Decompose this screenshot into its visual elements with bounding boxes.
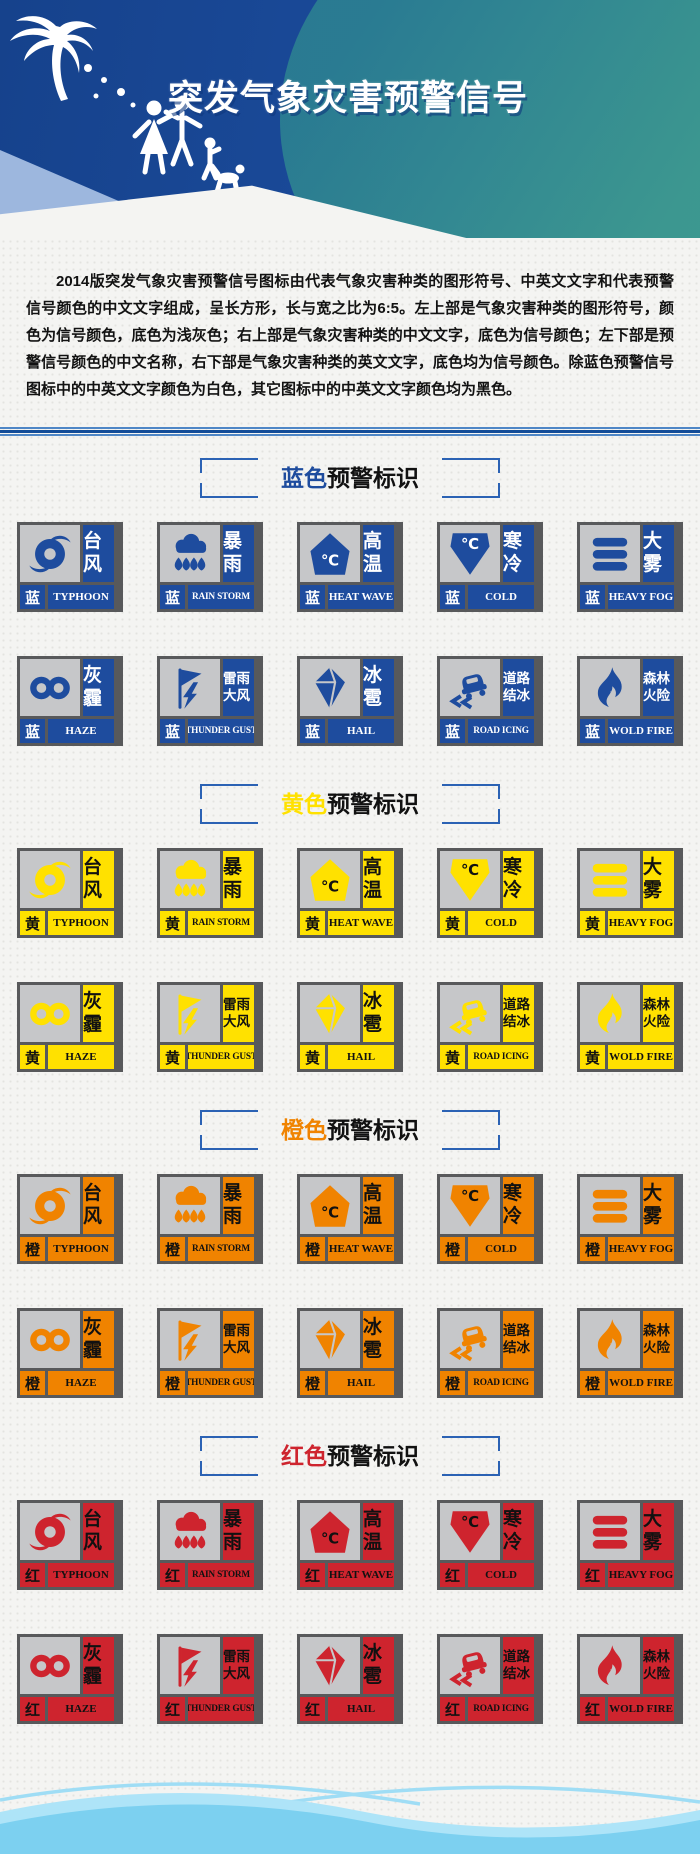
section-title: 橙色预警标识 <box>200 1110 500 1150</box>
card-icon-cell <box>300 1637 360 1694</box>
card-zh-label: 台风 <box>83 525 114 582</box>
rain-storm-icon <box>167 1183 213 1229</box>
card-icon-cell <box>160 1637 220 1694</box>
palm-tree-icon <box>10 16 97 101</box>
card-icon-cell <box>580 1637 640 1694</box>
warning-card-blue-hail: 冰雹 蓝 HAIL <box>297 656 403 746</box>
svg-text:℃: ℃ <box>321 551 339 569</box>
section-title-color-word: 蓝色 <box>281 465 327 491</box>
typhoon-icon <box>27 1183 73 1229</box>
wold-fire-icon <box>587 991 633 1037</box>
card-en-label: HAIL <box>328 719 394 743</box>
card-icon-cell <box>20 1503 80 1560</box>
section-blue: 蓝色预警标识 台风 蓝 TYPHOON 暴雨 蓝 RAIN STORM ℃ 高温… <box>0 458 700 746</box>
card-color-label: 红 <box>20 1563 45 1587</box>
bracket-corner-icon <box>200 784 258 799</box>
warning-card-blue-heavy-fog: 大雾 蓝 HEAVY FOG <box>577 522 683 612</box>
bracket-corner-icon <box>442 458 500 473</box>
section-title-suffix: 预警标识 <box>327 465 419 491</box>
card-color-label: 蓝 <box>160 719 185 743</box>
card-zh-label: 寒冷 <box>503 851 534 908</box>
card-en-label: ROAD ICING <box>468 1045 534 1069</box>
card-en-label: TYPHOON <box>48 1237 114 1261</box>
bracket-corner-icon <box>200 1110 258 1125</box>
card-zh-label: 台风 <box>83 1177 114 1234</box>
card-color-label: 蓝 <box>20 719 45 743</box>
bracket-corner-icon <box>200 1436 258 1451</box>
card-zh-label: 冰雹 <box>363 1311 394 1368</box>
card-en-label: HAIL <box>328 1045 394 1069</box>
thunder-gust-icon <box>167 665 213 711</box>
card-en-label: RAIN STORM <box>188 911 254 935</box>
card-icon-cell <box>160 659 220 716</box>
card-zh-label: 雷雨大风 <box>223 659 254 716</box>
heat-wave-icon: ℃ <box>307 857 353 903</box>
warning-card-orange-road-icing: 道路结冰 橙 ROAD ICING <box>437 1308 543 1398</box>
card-en-label: HEAVY FOG <box>608 585 674 609</box>
card-icon-cell <box>440 1311 500 1368</box>
card-icon-cell: ℃ <box>440 1177 500 1234</box>
card-en-label: RAIN STORM <box>188 585 254 609</box>
header-banner: 突发气象灾害预警信号 <box>0 0 700 238</box>
warning-card-red-typhoon: 台风 红 TYPHOON <box>17 1500 123 1590</box>
card-icon-cell: ℃ <box>300 851 360 908</box>
heavy-fog-icon <box>587 1509 633 1555</box>
cold-icon: ℃ <box>447 1183 493 1229</box>
section-yellow: 黄色预警标识 台风 黄 TYPHOON 暴雨 黄 RAIN STORM ℃ 高温… <box>0 784 700 1072</box>
svg-text:℃: ℃ <box>461 1186 479 1204</box>
bracket-corner-icon <box>442 809 500 824</box>
road-icing-icon <box>447 991 493 1037</box>
card-icon-cell <box>580 659 640 716</box>
warning-card-blue-typhoon: 台风 蓝 TYPHOON <box>17 522 123 612</box>
card-zh-label: 灰霾 <box>83 985 114 1042</box>
card-zh-label: 灰霾 <box>83 659 114 716</box>
card-color-label: 蓝 <box>20 585 45 609</box>
card-color-label: 蓝 <box>300 719 325 743</box>
warning-card-blue-heat-wave: ℃ 高温 蓝 HEAT WAVE <box>297 522 403 612</box>
card-en-label: THUNDER GUST <box>188 1697 254 1721</box>
warning-card-blue-rain-storm: 暴雨 蓝 RAIN STORM <box>157 522 263 612</box>
card-row: 台风 红 TYPHOON 暴雨 红 RAIN STORM ℃ 高温 红 HEAT… <box>0 1500 700 1590</box>
hail-icon <box>307 991 353 1037</box>
card-icon-cell <box>160 1503 220 1560</box>
card-color-label: 橙 <box>20 1371 45 1395</box>
warning-card-orange-haze: 灰霾 橙 HAZE <box>17 1308 123 1398</box>
haze-icon <box>27 991 73 1037</box>
card-icon-cell: ℃ <box>300 1177 360 1234</box>
card-icon-cell <box>580 1311 640 1368</box>
divider-rule <box>0 427 700 436</box>
card-zh-label: 寒冷 <box>503 1503 534 1560</box>
card-icon-cell <box>580 851 640 908</box>
warning-card-yellow-heavy-fog: 大雾 黄 HEAVY FOG <box>577 848 683 938</box>
section-title: 红色预警标识 <box>200 1436 500 1476</box>
svg-text:℃: ℃ <box>461 1512 479 1530</box>
card-zh-label: 暴雨 <box>223 1503 254 1560</box>
card-en-label: WOLD FIRE <box>608 1371 674 1395</box>
card-color-label: 红 <box>300 1697 325 1721</box>
warning-card-orange-wold-fire: 森林火险 橙 WOLD FIRE <box>577 1308 683 1398</box>
card-color-label: 红 <box>580 1697 605 1721</box>
card-icon-cell <box>440 1637 500 1694</box>
card-icon-cell: ℃ <box>440 525 500 582</box>
wold-fire-icon <box>587 1317 633 1363</box>
card-row: 台风 橙 TYPHOON 暴雨 橙 RAIN STORM ℃ 高温 橙 HEAT… <box>0 1174 700 1264</box>
warning-card-yellow-haze: 灰霾 黄 HAZE <box>17 982 123 1072</box>
card-color-label: 蓝 <box>580 585 605 609</box>
card-icon-cell: ℃ <box>440 851 500 908</box>
card-en-label: THUNDER GUST <box>188 1045 254 1069</box>
warning-card-yellow-hail: 冰雹 黄 HAIL <box>297 982 403 1072</box>
hail-icon <box>307 1643 353 1689</box>
section-title: 蓝色预警标识 <box>200 458 500 498</box>
card-icon-cell <box>300 659 360 716</box>
svg-text:℃: ℃ <box>461 860 479 878</box>
card-zh-label: 大雾 <box>643 1177 674 1234</box>
card-color-label: 蓝 <box>440 719 465 743</box>
heat-wave-icon: ℃ <box>307 1509 353 1555</box>
card-icon-cell <box>20 659 80 716</box>
warning-card-yellow-wold-fire: 森林火险 黄 WOLD FIRE <box>577 982 683 1072</box>
card-en-label: HEAVY FOG <box>608 1237 674 1261</box>
heavy-fog-icon <box>587 857 633 903</box>
card-color-label: 蓝 <box>300 585 325 609</box>
sections-container: 蓝色预警标识 台风 蓝 TYPHOON 暴雨 蓝 RAIN STORM ℃ 高温… <box>0 458 700 1724</box>
road-icing-icon <box>447 1643 493 1689</box>
card-zh-label: 暴雨 <box>223 851 254 908</box>
card-color-label: 橙 <box>300 1237 325 1261</box>
thunder-gust-icon <box>167 1643 213 1689</box>
card-row: 灰霾 橙 HAZE 雷雨大风 橙 THUNDER GUST 冰雹 橙 HAIL … <box>0 1308 700 1398</box>
warning-card-blue-thunder-gust: 雷雨大风 蓝 THUNDER GUST <box>157 656 263 746</box>
card-zh-label: 暴雨 <box>223 525 254 582</box>
card-zh-label: 台风 <box>83 851 114 908</box>
divider-rule-bar <box>0 430 700 433</box>
card-zh-label: 冰雹 <box>363 985 394 1042</box>
card-color-label: 红 <box>160 1697 185 1721</box>
card-zh-label: 道路结冰 <box>503 985 534 1042</box>
warning-card-orange-typhoon: 台风 橙 TYPHOON <box>17 1174 123 1264</box>
warning-card-red-cold: ℃ 寒冷 红 COLD <box>437 1500 543 1590</box>
warning-card-red-hail: 冰雹 红 HAIL <box>297 1634 403 1724</box>
section-title: 黄色预警标识 <box>200 784 500 824</box>
warning-card-red-heavy-fog: 大雾 红 HEAVY FOG <box>577 1500 683 1590</box>
card-icon-cell <box>580 1503 640 1560</box>
card-row: 灰霾 蓝 HAZE 雷雨大风 蓝 THUNDER GUST 冰雹 蓝 HAIL … <box>0 656 700 746</box>
warning-card-orange-heavy-fog: 大雾 橙 HEAVY FOG <box>577 1174 683 1264</box>
card-icon-cell <box>580 985 640 1042</box>
svg-text:℃: ℃ <box>321 877 339 895</box>
card-color-label: 黄 <box>20 1045 45 1069</box>
warning-card-red-road-icing: 道路结冰 红 ROAD ICING <box>437 1634 543 1724</box>
card-color-label: 橙 <box>300 1371 325 1395</box>
thunder-gust-icon <box>167 991 213 1037</box>
card-icon-cell <box>160 525 220 582</box>
cold-icon: ℃ <box>447 531 493 577</box>
section-title-color-word: 黄色 <box>281 791 327 817</box>
card-icon-cell <box>20 1637 80 1694</box>
warning-card-red-heat-wave: ℃ 高温 红 HEAT WAVE <box>297 1500 403 1590</box>
card-icon-cell <box>580 1177 640 1234</box>
card-en-label: COLD <box>468 1237 534 1261</box>
card-color-label: 黄 <box>580 911 605 935</box>
card-color-label: 红 <box>440 1563 465 1587</box>
warning-card-yellow-cold: ℃ 寒冷 黄 COLD <box>437 848 543 938</box>
card-color-label: 红 <box>160 1563 185 1587</box>
card-icon-cell <box>160 985 220 1042</box>
warning-card-yellow-rain-storm: 暴雨 黄 RAIN STORM <box>157 848 263 938</box>
heat-wave-icon: ℃ <box>307 1183 353 1229</box>
card-icon-cell <box>580 525 640 582</box>
section-title-color-word: 红色 <box>281 1443 327 1469</box>
warning-card-red-haze: 灰霾 红 HAZE <box>17 1634 123 1724</box>
footer-waves <box>0 1762 700 1854</box>
card-icon-cell: ℃ <box>300 1503 360 1560</box>
bracket-corner-icon <box>442 784 500 799</box>
card-color-label: 黄 <box>300 911 325 935</box>
card-en-label: THUNDER GUST <box>188 719 254 743</box>
card-en-label: COLD <box>468 585 534 609</box>
card-en-label: TYPHOON <box>48 585 114 609</box>
card-icon-cell <box>20 851 80 908</box>
rain-storm-icon <box>167 531 213 577</box>
card-color-label: 橙 <box>580 1371 605 1395</box>
section-title-suffix: 预警标识 <box>327 791 419 817</box>
card-zh-label: 道路结冰 <box>503 1637 534 1694</box>
heat-wave-icon: ℃ <box>307 531 353 577</box>
card-icon-cell <box>300 1311 360 1368</box>
card-icon-cell: ℃ <box>440 1503 500 1560</box>
warning-card-red-wold-fire: 森林火险 红 WOLD FIRE <box>577 1634 683 1724</box>
card-zh-label: 大雾 <box>643 1503 674 1560</box>
card-zh-label: 雷雨大风 <box>223 1311 254 1368</box>
card-color-label: 黄 <box>160 1045 185 1069</box>
card-en-label: HEAVY FOG <box>608 911 674 935</box>
card-row: 灰霾 红 HAZE 雷雨大风 红 THUNDER GUST 冰雹 红 HAIL … <box>0 1634 700 1724</box>
card-zh-label: 雷雨大风 <box>223 985 254 1042</box>
card-color-label: 红 <box>300 1563 325 1587</box>
card-en-label: HAIL <box>328 1697 394 1721</box>
section-orange: 橙色预警标识 台风 橙 TYPHOON 暴雨 橙 RAIN STORM ℃ 高温… <box>0 1110 700 1398</box>
svg-text:℃: ℃ <box>321 1529 339 1547</box>
svg-text:℃: ℃ <box>461 534 479 552</box>
road-icing-icon <box>447 1317 493 1363</box>
typhoon-icon <box>27 857 73 903</box>
card-color-label: 橙 <box>160 1371 185 1395</box>
typhoon-icon <box>27 531 73 577</box>
card-en-label: COLD <box>468 1563 534 1587</box>
bracket-corner-icon <box>442 1135 500 1150</box>
cold-icon: ℃ <box>447 857 493 903</box>
bracket-corner-icon <box>200 458 258 473</box>
bracket-corner-icon <box>200 483 258 498</box>
section-red: 红色预警标识 台风 红 TYPHOON 暴雨 红 RAIN STORM ℃ 高温… <box>0 1436 700 1724</box>
card-zh-label: 森林火险 <box>643 1311 674 1368</box>
card-en-label: THUNDER GUST <box>188 1371 254 1395</box>
card-zh-label: 高温 <box>363 851 394 908</box>
bracket-corner-icon <box>200 1461 258 1476</box>
haze-icon <box>27 1643 73 1689</box>
card-en-label: HEAT WAVE <box>328 911 394 935</box>
card-color-label: 黄 <box>160 911 185 935</box>
thunder-gust-icon <box>167 1317 213 1363</box>
footer <box>0 1762 700 1854</box>
card-en-label: ROAD ICING <box>468 1697 534 1721</box>
card-zh-label: 森林火险 <box>643 1637 674 1694</box>
card-zh-label: 森林火险 <box>643 985 674 1042</box>
card-en-label: HEAT WAVE <box>328 1237 394 1261</box>
card-zh-label: 高温 <box>363 525 394 582</box>
card-zh-label: 台风 <box>83 1503 114 1560</box>
rain-storm-icon <box>167 1509 213 1555</box>
card-en-label: RAIN STORM <box>188 1237 254 1261</box>
card-color-label: 橙 <box>440 1237 465 1261</box>
heavy-fog-icon <box>587 1183 633 1229</box>
section-title-suffix: 预警标识 <box>327 1443 419 1469</box>
card-zh-label: 寒冷 <box>503 525 534 582</box>
cold-icon: ℃ <box>447 1509 493 1555</box>
wold-fire-icon <box>587 1643 633 1689</box>
card-zh-label: 高温 <box>363 1177 394 1234</box>
typhoon-icon <box>27 1509 73 1555</box>
card-en-label: HAZE <box>48 1371 114 1395</box>
warning-card-orange-heat-wave: ℃ 高温 橙 HEAT WAVE <box>297 1174 403 1264</box>
card-zh-label: 道路结冰 <box>503 659 534 716</box>
card-en-label: HAZE <box>48 719 114 743</box>
card-zh-label: 冰雹 <box>363 659 394 716</box>
card-zh-label: 高温 <box>363 1503 394 1560</box>
bracket-corner-icon <box>200 1135 258 1150</box>
card-en-label: WOLD FIRE <box>608 1697 674 1721</box>
card-icon-cell <box>20 1177 80 1234</box>
warning-card-red-thunder-gust: 雷雨大风 红 THUNDER GUST <box>157 1634 263 1724</box>
bracket-corner-icon <box>442 483 500 498</box>
card-icon-cell <box>300 985 360 1042</box>
warning-card-orange-thunder-gust: 雷雨大风 橙 THUNDER GUST <box>157 1308 263 1398</box>
warning-card-yellow-thunder-gust: 雷雨大风 黄 THUNDER GUST <box>157 982 263 1072</box>
card-zh-label: 寒冷 <box>503 1177 534 1234</box>
warning-card-orange-cold: ℃ 寒冷 橙 COLD <box>437 1174 543 1264</box>
bracket-corner-icon <box>442 1436 500 1451</box>
card-en-label: WOLD FIRE <box>608 1045 674 1069</box>
card-color-label: 黄 <box>440 911 465 935</box>
bracket-corner-icon <box>442 1461 500 1476</box>
card-color-label: 黄 <box>580 1045 605 1069</box>
card-zh-label: 灰霾 <box>83 1637 114 1694</box>
page-title: 突发气象灾害预警信号 <box>168 70 528 121</box>
card-color-label: 红 <box>580 1563 605 1587</box>
card-zh-label: 暴雨 <box>223 1177 254 1234</box>
warning-card-yellow-typhoon: 台风 黄 TYPHOON <box>17 848 123 938</box>
card-icon-cell <box>160 1177 220 1234</box>
rain-storm-icon <box>167 857 213 903</box>
card-en-label: HAZE <box>48 1697 114 1721</box>
warning-card-yellow-road-icing: 道路结冰 黄 ROAD ICING <box>437 982 543 1072</box>
heavy-fog-icon <box>587 531 633 577</box>
card-zh-label: 冰雹 <box>363 1637 394 1694</box>
card-zh-label: 森林火险 <box>643 659 674 716</box>
hail-icon <box>307 665 353 711</box>
card-en-label: HEAT WAVE <box>328 1563 394 1587</box>
warning-card-orange-rain-storm: 暴雨 橙 RAIN STORM <box>157 1174 263 1264</box>
card-color-label: 橙 <box>440 1371 465 1395</box>
bracket-corner-icon <box>442 1110 500 1125</box>
card-color-label: 红 <box>440 1697 465 1721</box>
card-zh-label: 大雾 <box>643 851 674 908</box>
card-zh-label: 大雾 <box>643 525 674 582</box>
svg-text:℃: ℃ <box>321 1203 339 1221</box>
card-en-label: HAIL <box>328 1371 394 1395</box>
intro-paragraph: 2014版突发气象灾害预警信号图标由代表气象灾害种类的图形符号、中英文文字和代表… <box>26 268 674 403</box>
card-icon-cell <box>20 1311 80 1368</box>
card-color-label: 黄 <box>440 1045 465 1069</box>
card-color-label: 黄 <box>300 1045 325 1069</box>
warning-card-blue-cold: ℃ 寒冷 蓝 COLD <box>437 522 543 612</box>
card-color-label: 蓝 <box>440 585 465 609</box>
card-color-label: 黄 <box>20 911 45 935</box>
card-color-label: 蓝 <box>160 585 185 609</box>
card-icon-cell <box>160 851 220 908</box>
card-row: 台风 黄 TYPHOON 暴雨 黄 RAIN STORM ℃ 高温 黄 HEAT… <box>0 848 700 938</box>
section-title-color-word: 橙色 <box>281 1117 327 1143</box>
card-icon-cell <box>20 985 80 1042</box>
warning-card-blue-wold-fire: 森林火险 蓝 WOLD FIRE <box>577 656 683 746</box>
road-icing-icon <box>447 665 493 711</box>
card-icon-cell: ℃ <box>300 525 360 582</box>
card-en-label: WOLD FIRE <box>608 719 674 743</box>
card-zh-label: 灰霾 <box>83 1311 114 1368</box>
card-color-label: 蓝 <box>580 719 605 743</box>
card-en-label: RAIN STORM <box>188 1563 254 1587</box>
section-title-suffix: 预警标识 <box>327 1117 419 1143</box>
card-icon-cell <box>20 525 80 582</box>
card-icon-cell <box>440 659 500 716</box>
card-en-label: ROAD ICING <box>468 1371 534 1395</box>
wold-fire-icon <box>587 665 633 711</box>
warning-card-red-rain-storm: 暴雨 红 RAIN STORM <box>157 1500 263 1590</box>
card-row: 灰霾 黄 HAZE 雷雨大风 黄 THUNDER GUST 冰雹 黄 HAIL … <box>0 982 700 1072</box>
card-zh-label: 道路结冰 <box>503 1311 534 1368</box>
card-icon-cell <box>160 1311 220 1368</box>
card-row: 台风 蓝 TYPHOON 暴雨 蓝 RAIN STORM ℃ 高温 蓝 HEAT… <box>0 522 700 612</box>
card-en-label: COLD <box>468 911 534 935</box>
poster: 突发气象灾害预警信号 2014版突发气象灾害预警信号图标由代表气象灾害种类的图形… <box>0 0 700 1854</box>
card-en-label: HEAVY FOG <box>608 1563 674 1587</box>
card-color-label: 红 <box>20 1697 45 1721</box>
card-en-label: HAZE <box>48 1045 114 1069</box>
haze-icon <box>27 665 73 711</box>
warning-card-yellow-heat-wave: ℃ 高温 黄 HEAT WAVE <box>297 848 403 938</box>
warning-card-blue-road-icing: 道路结冰 蓝 ROAD ICING <box>437 656 543 746</box>
card-en-label: TYPHOON <box>48 911 114 935</box>
warning-card-orange-hail: 冰雹 橙 HAIL <box>297 1308 403 1398</box>
card-color-label: 橙 <box>20 1237 45 1261</box>
haze-icon <box>27 1317 73 1363</box>
card-en-label: TYPHOON <box>48 1563 114 1587</box>
hail-icon <box>307 1317 353 1363</box>
card-icon-cell <box>440 985 500 1042</box>
card-zh-label: 雷雨大风 <box>223 1637 254 1694</box>
card-color-label: 橙 <box>580 1237 605 1261</box>
card-en-label: ROAD ICING <box>468 719 534 743</box>
warning-card-blue-haze: 灰霾 蓝 HAZE <box>17 656 123 746</box>
card-color-label: 橙 <box>160 1237 185 1261</box>
bracket-corner-icon <box>200 809 258 824</box>
card-en-label: HEAT WAVE <box>328 585 394 609</box>
